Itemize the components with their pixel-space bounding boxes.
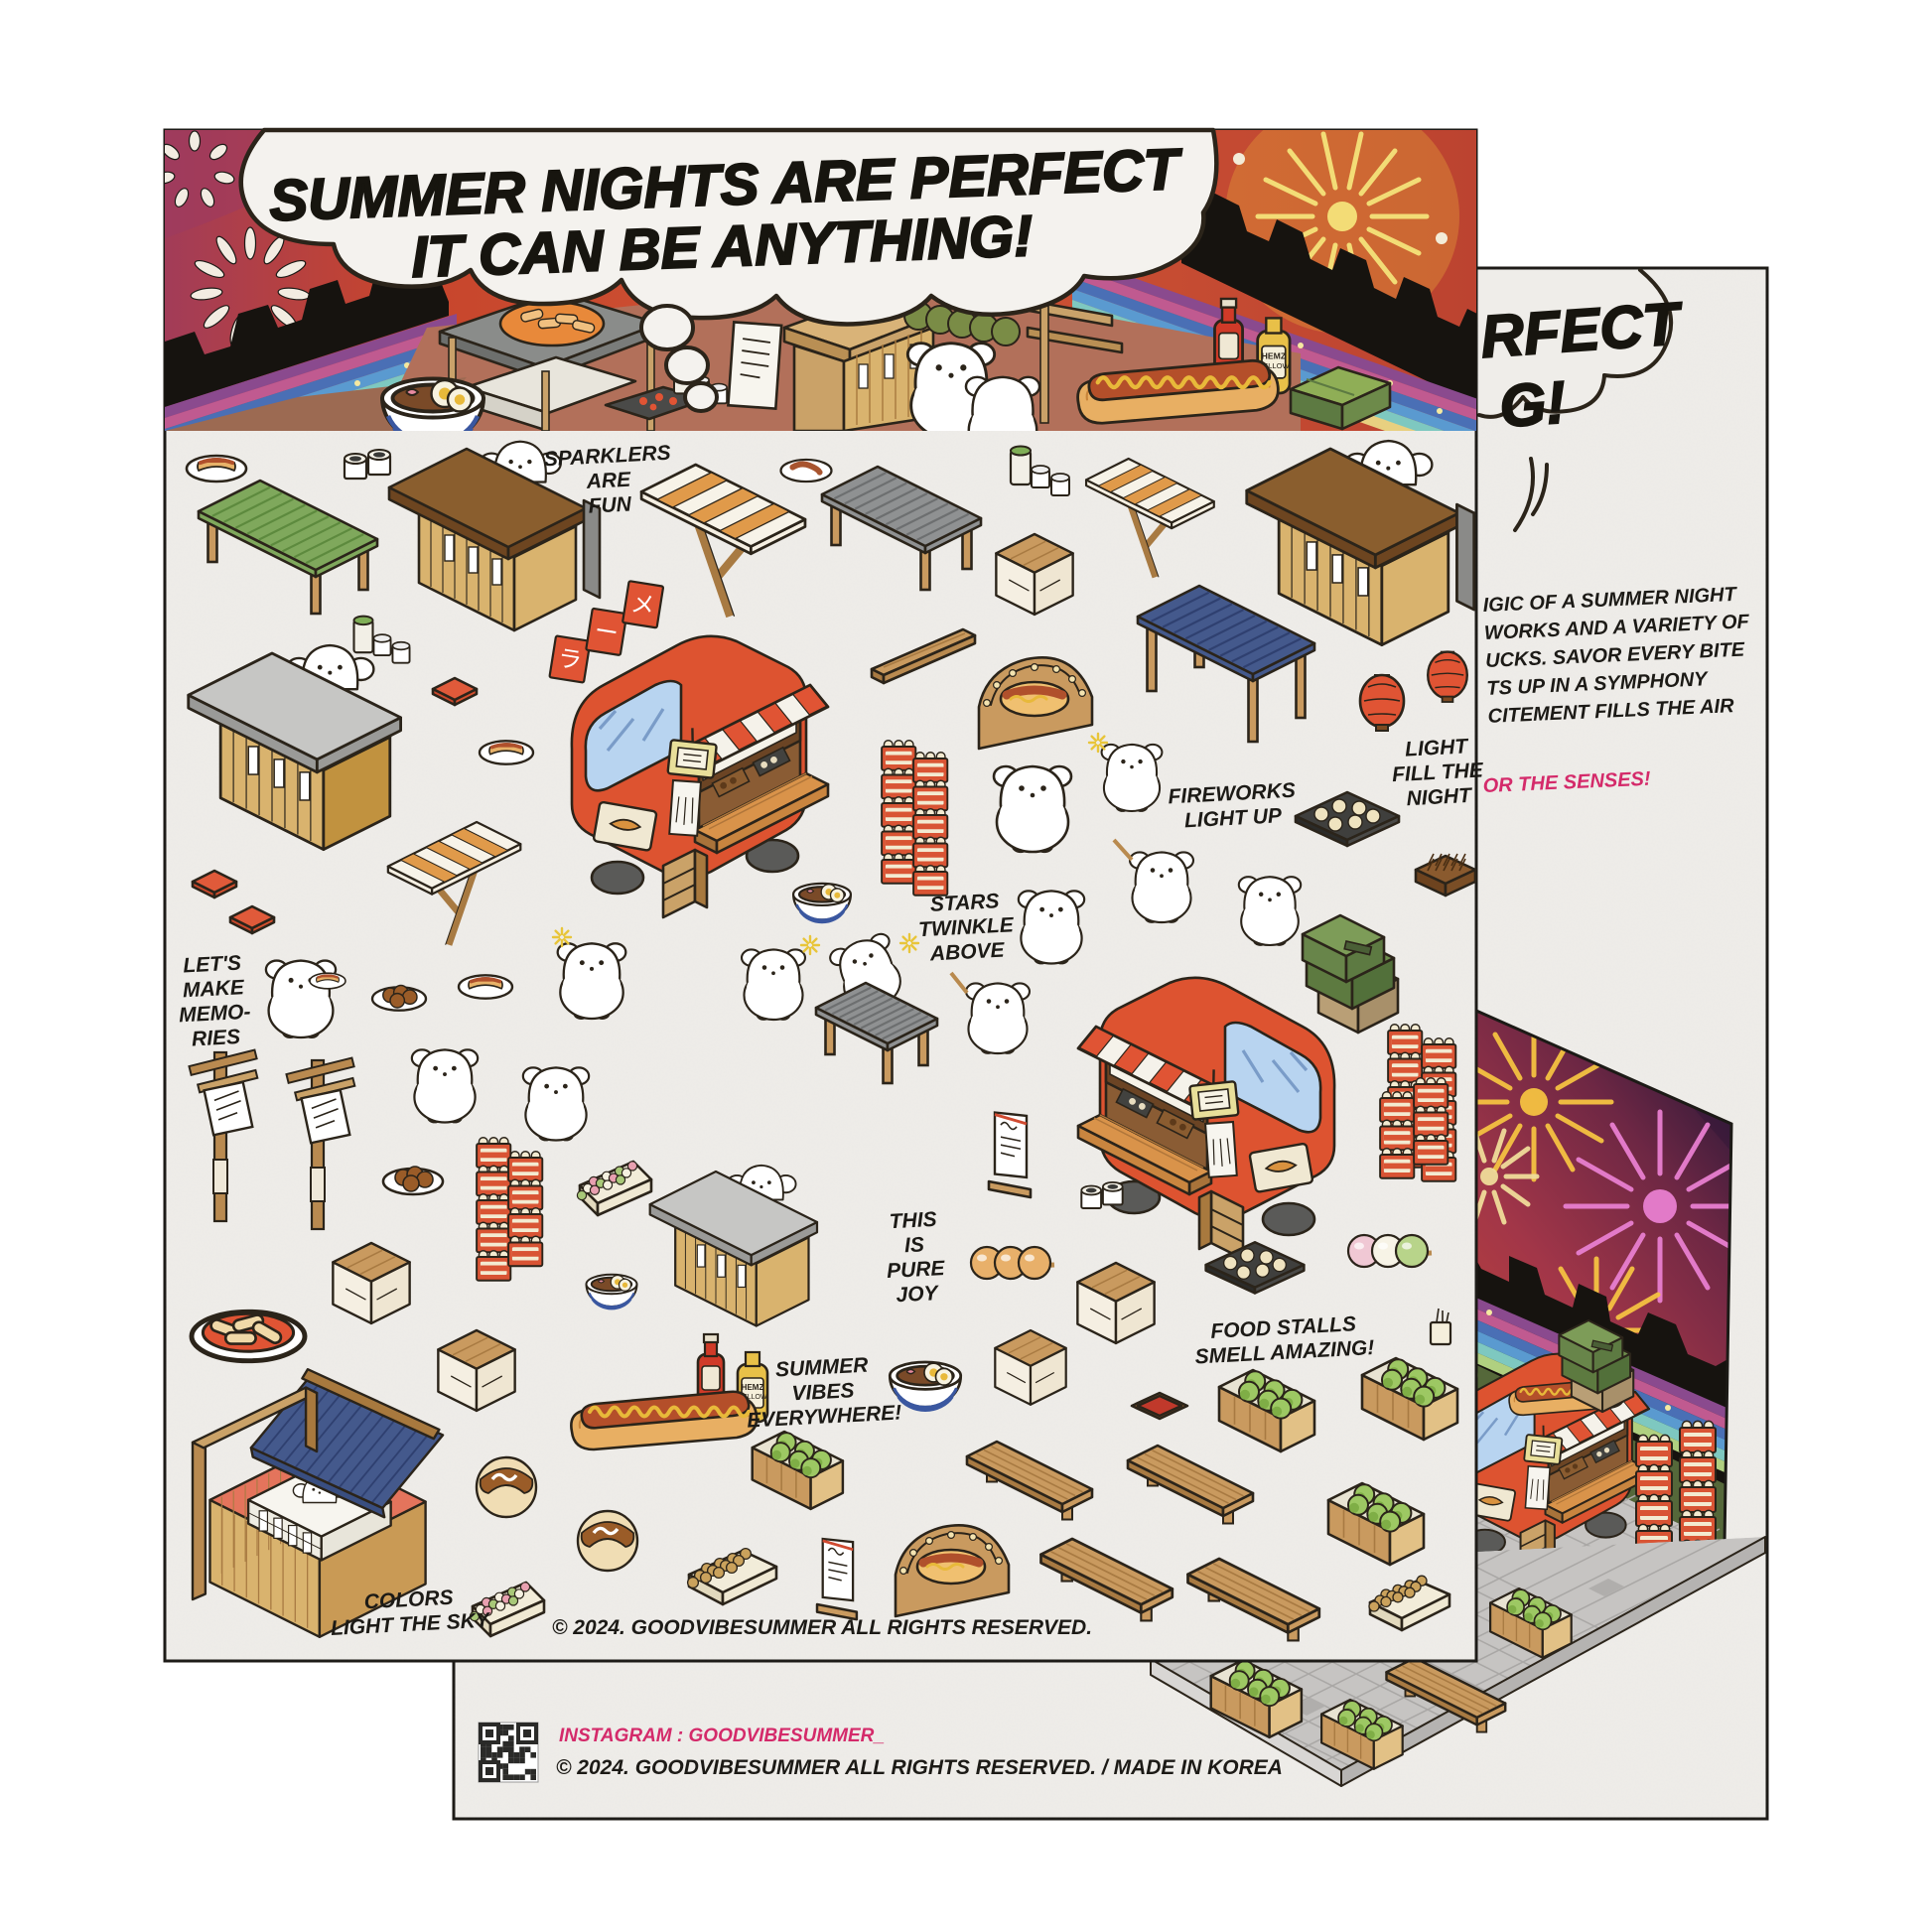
- svg-text:MAKE: MAKE: [182, 976, 245, 1002]
- svg-text:ー: ー: [593, 618, 621, 647]
- svg-text:JOY: JOY: [896, 1282, 940, 1307]
- svg-text:ABOVE: ABOVE: [928, 939, 1006, 966]
- svg-text:LET'S: LET'S: [183, 951, 242, 977]
- svg-text:STARS: STARS: [929, 890, 1000, 916]
- svg-text:RIES: RIES: [191, 1026, 240, 1051]
- svg-text:NIGHT: NIGHT: [1406, 784, 1474, 811]
- svg-text:ARE: ARE: [585, 469, 631, 493]
- svg-text:ラ: ラ: [556, 645, 584, 675]
- svg-text:THIS: THIS: [889, 1208, 937, 1233]
- svg-text:© 2024. GOODVIBESUMMER ALL RIG: © 2024. GOODVIBESUMMER ALL RIGHTS RESERV…: [556, 1756, 1283, 1779]
- svg-text:COLORS: COLORS: [363, 1587, 454, 1614]
- svg-text:IS: IS: [903, 1233, 924, 1257]
- svg-text:HEMZ: HEMZ: [742, 1383, 764, 1392]
- svg-text:SUMMER: SUMMER: [774, 1354, 869, 1382]
- svg-text:LIGHT: LIGHT: [1405, 735, 1470, 760]
- svg-text:FILL THE: FILL THE: [1392, 759, 1485, 786]
- svg-text:MEMO-: MEMO-: [179, 1001, 251, 1028]
- svg-text:FUN: FUN: [588, 492, 632, 517]
- svg-text:INSTAGRAM : GOODVIBESUMMER_: INSTAGRAM : GOODVIBESUMMER_: [559, 1725, 885, 1746]
- svg-text:RFECT: RFECT: [1478, 290, 1686, 370]
- svg-text:G!: G!: [1497, 368, 1568, 439]
- svg-text:VIBES: VIBES: [791, 1379, 855, 1405]
- svg-text:© 2024. GOODVIBESUMMER ALL RIG: © 2024. GOODVIBESUMMER ALL RIGHTS RESERV…: [552, 1616, 1092, 1639]
- svg-text:HEMZ: HEMZ: [1262, 350, 1287, 360]
- svg-text:メ: メ: [629, 590, 657, 620]
- svg-text:PURE: PURE: [887, 1257, 946, 1283]
